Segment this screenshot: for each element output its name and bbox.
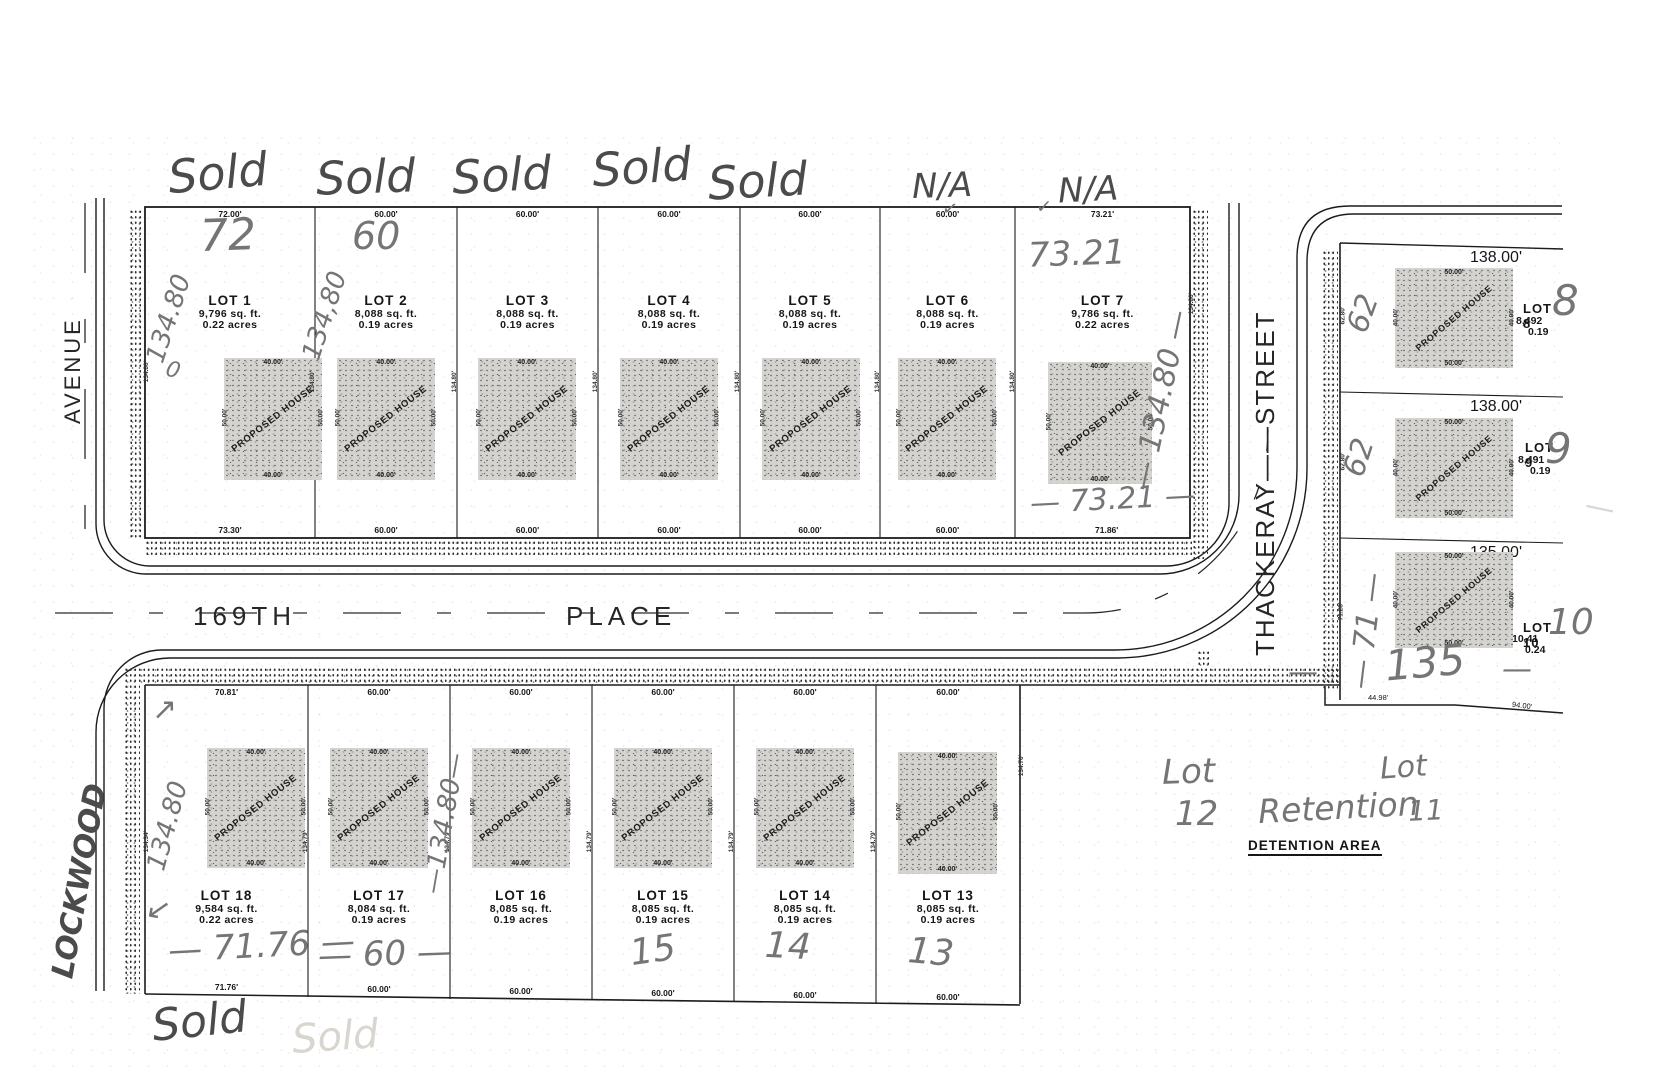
dim-side: 134.80' bbox=[1009, 371, 1016, 392]
dim-side: 134.79' bbox=[728, 831, 735, 852]
lot-14-front-dim: 60.00' bbox=[734, 687, 876, 697]
house-dim: 40.00' bbox=[762, 359, 860, 366]
lot-6-rear-dim: 60.00' bbox=[880, 525, 1015, 535]
lot-18-proposed-house: 40.00'40.00'50.00'50.00'PROPOSED HOUSE bbox=[207, 748, 305, 868]
handwritten-lot14-number: 14 bbox=[764, 925, 812, 968]
house-dim: 50.00' bbox=[1395, 360, 1513, 367]
handwritten-lot10-number: 10 bbox=[1548, 602, 1594, 643]
dim-side: 134.79' bbox=[870, 831, 877, 852]
handwritten-lot9-number: 9 bbox=[1545, 424, 1572, 473]
house-dim: 50.00' bbox=[993, 803, 1000, 821]
house-dim: 50.00' bbox=[1395, 553, 1513, 560]
house-dim: 40.00' bbox=[330, 749, 428, 756]
lot-13-label: LOT 13 bbox=[876, 888, 1020, 903]
dim-side: 134.80' bbox=[734, 371, 741, 392]
handwritten-sold-2: Sold bbox=[315, 148, 416, 205]
house-dim: 50.00' bbox=[334, 409, 341, 427]
easement-strip-south bbox=[124, 667, 1340, 684]
lot-5-rear-dim: 60.00' bbox=[740, 525, 880, 535]
house-dim: 40.00' bbox=[207, 749, 305, 756]
house-dim: 50.00' bbox=[566, 798, 573, 816]
handwritten-lot13-number: 13 bbox=[906, 930, 955, 975]
house-dim: 50.00' bbox=[475, 409, 482, 427]
handwritten-sold-4: Sold bbox=[590, 137, 693, 198]
handwritten-lot12-word: Lot bbox=[1161, 751, 1215, 793]
house-dim: 50.00' bbox=[759, 409, 766, 427]
lot-3-acres: 0.19 acres bbox=[457, 319, 598, 331]
proposed-house-label: PROPOSED HOUSE bbox=[904, 777, 991, 848]
handwritten-lot12-number: 12 bbox=[1175, 794, 1218, 834]
lot-9-depth-dim: 138.00' bbox=[1470, 398, 1522, 416]
detention-area-label: DETENTION AREA bbox=[1248, 838, 1382, 856]
house-dim: 40.00' bbox=[224, 472, 322, 479]
proposed-house-label: PROPOSED HOUSE bbox=[1414, 283, 1495, 353]
house-dim: 40.00' bbox=[478, 359, 576, 366]
dim-side: 134.80' bbox=[592, 371, 599, 392]
lot-4-acres: 0.19 acres bbox=[598, 319, 740, 331]
house-dim: 50.00' bbox=[708, 798, 715, 816]
house-dim: 50.00' bbox=[1395, 419, 1513, 426]
lot-15-rear-dim: 60.00' bbox=[592, 988, 734, 998]
lot-17-proposed-house: 40.00'40.00'50.00'50.00'PROPOSED HOUSE bbox=[330, 748, 428, 868]
lot-8-acres: 0.19 bbox=[1528, 326, 1548, 338]
proposed-house-label: PROPOSED HOUSE bbox=[1057, 387, 1144, 458]
house-dim: 50.00' bbox=[431, 409, 438, 427]
house-dim: 50.00' bbox=[1395, 269, 1513, 276]
house-dim: 40.00' bbox=[330, 860, 428, 867]
dim-r-west: 71.28' bbox=[1337, 603, 1344, 621]
dim-side-east: 134.70' bbox=[1018, 755, 1025, 776]
lot-2-proposed-house: 40.00'40.00'50.00'50.00'PROPOSED HOUSE bbox=[337, 358, 435, 480]
house-dim: 40.00' bbox=[620, 472, 718, 479]
house-dim: 40.00' bbox=[337, 359, 435, 366]
dim-side: 134.79' bbox=[586, 831, 593, 852]
proposed-house-label: PROPOSED HOUSE bbox=[904, 383, 991, 454]
handwritten-sold-1: Sold bbox=[166, 142, 270, 204]
proposed-house-label: PROPOSED HOUSE bbox=[484, 383, 571, 454]
house-dim: 40.00' bbox=[614, 860, 712, 867]
lot-1-proposed-house: 40.00'40.00'50.00'50.00'PROPOSED HOUSE bbox=[224, 358, 322, 480]
house-dim: 50.00' bbox=[895, 409, 902, 427]
house-dim: 50.00' bbox=[992, 409, 999, 427]
house-dim: 40.00' bbox=[614, 749, 712, 756]
proposed-house-label: PROPOSED HOUSE bbox=[626, 383, 713, 454]
handwritten-sold-faint: Sold bbox=[291, 1011, 380, 1063]
handwritten-sold-bottom: Sold bbox=[150, 991, 250, 1052]
house-dim: 50.00' bbox=[753, 798, 760, 816]
handwritten-dash-e: — bbox=[1502, 652, 1532, 687]
house-dim: 40.00' bbox=[207, 860, 305, 867]
lot-16-front-dim: 60.00' bbox=[450, 687, 592, 697]
lot-13-acres: 0.19 acres bbox=[876, 914, 1020, 926]
house-dim: 40.00' bbox=[1509, 591, 1516, 609]
house-dim: 40.00' bbox=[1509, 309, 1516, 327]
lot-2-rear-dim: 60.00' bbox=[315, 525, 457, 535]
house-dim: 40.00' bbox=[1392, 591, 1399, 609]
house-dim: 40.00' bbox=[1048, 363, 1152, 370]
lot-3-front-dim: 60.00' bbox=[457, 209, 598, 219]
lot-6-acres: 0.19 acres bbox=[880, 319, 1015, 331]
house-dim: 50.00' bbox=[1395, 510, 1513, 517]
street-label-thackeray: THACKERAY——STREET bbox=[1250, 216, 1281, 656]
house-dim: 40.00' bbox=[1392, 309, 1399, 327]
house-dim: 50.00' bbox=[221, 409, 228, 427]
house-dim: 40.00' bbox=[620, 359, 718, 366]
dim-side: 134.79' bbox=[302, 831, 309, 852]
lot-15-proposed-house: 40.00'40.00'50.00'50.00'PROPOSED HOUSE bbox=[614, 748, 712, 868]
house-dim: 50.00' bbox=[318, 409, 325, 427]
lot-3-rear-dim: 60.00' bbox=[457, 525, 598, 535]
lot-6-label: LOT 6 bbox=[880, 293, 1015, 308]
house-dim: 40.00' bbox=[478, 472, 576, 479]
lot-18-rear-dim: 71.76' bbox=[145, 982, 308, 992]
lot-7-rear-dim: 71.86' bbox=[1015, 525, 1190, 535]
house-dim: 50.00' bbox=[204, 798, 211, 816]
easement-strip-top-south bbox=[145, 540, 1192, 555]
house-dim: 50.00' bbox=[327, 798, 334, 816]
dim-side: 134.80' bbox=[309, 371, 316, 392]
lot-5-proposed-house: 40.00'40.00'50.00'50.00'PROPOSED HOUSE bbox=[762, 358, 860, 480]
handwritten-lot7-width: 73.21 bbox=[1027, 232, 1126, 275]
house-dim: 40.00' bbox=[898, 359, 996, 366]
house-dim: 40.00' bbox=[472, 749, 570, 756]
house-dim: 40.00' bbox=[756, 860, 854, 867]
lot-4-label: LOT 4 bbox=[598, 293, 740, 308]
house-dim: 40.00' bbox=[337, 472, 435, 479]
house-dim: 50.00' bbox=[856, 409, 863, 427]
proposed-house-label: PROPOSED HOUSE bbox=[213, 772, 300, 843]
lot-5-front-dim: 60.00' bbox=[740, 209, 880, 219]
proposed-house-label: PROPOSED HOUSE bbox=[230, 383, 317, 454]
handwritten-lot17-rear-width: — 60 — bbox=[317, 932, 451, 977]
handwritten-lot1-width: 72 bbox=[199, 209, 257, 262]
lot-3-proposed-house: 40.00'40.00'50.00'50.00'PROPOSED HOUSE bbox=[478, 358, 576, 480]
proposed-house-label: PROPOSED HOUSE bbox=[478, 772, 565, 843]
house-dim: 50.00' bbox=[714, 409, 721, 427]
house-dim: 40.00' bbox=[898, 866, 997, 873]
lot-8-depth-dim: 138.00' bbox=[1470, 249, 1522, 267]
house-dim: 50.00' bbox=[572, 409, 579, 427]
lot-13-proposed-house: 40.00'40.00'50.00'50.00'PROPOSED HOUSE bbox=[898, 752, 997, 874]
easement-strip-notch bbox=[1197, 650, 1211, 668]
proposed-house-label: PROPOSED HOUSE bbox=[768, 383, 855, 454]
handwritten-lot11-word: Lot bbox=[1379, 748, 1428, 786]
handwritten-lot10-frontage: 135 bbox=[1383, 635, 1467, 691]
handwritten-na-2: N/A bbox=[1057, 168, 1119, 211]
dim-4498: 44.98' bbox=[1368, 693, 1388, 702]
lot-4-front-dim: 60.00' bbox=[598, 209, 740, 219]
house-dim: 40.00' bbox=[898, 753, 997, 760]
house-dim: 40.00' bbox=[898, 472, 996, 479]
house-dim: 40.00' bbox=[1392, 459, 1399, 477]
lot-5-label: LOT 5 bbox=[740, 293, 880, 308]
handwritten-lot8-number: 8 bbox=[1552, 276, 1579, 325]
house-dim: 50.00' bbox=[895, 803, 902, 821]
proposed-house-label: PROPOSED HOUSE bbox=[336, 772, 423, 843]
lot-5-acres: 0.19 acres bbox=[740, 319, 880, 331]
dim-side: 134.80' bbox=[874, 371, 881, 392]
house-dim: 40.00' bbox=[762, 472, 860, 479]
house-dim: 50.00' bbox=[850, 798, 857, 816]
house-dim: 50.00' bbox=[301, 798, 308, 816]
handwritten-lot15-number: 15 bbox=[627, 927, 678, 974]
lot-16-proposed-house: 40.00'40.00'50.00'50.00'PROPOSED HOUSE bbox=[472, 748, 570, 868]
handwritten-dash-w: — bbox=[1288, 655, 1318, 690]
house-dim: 50.00' bbox=[611, 798, 618, 816]
proposed-house-label: PROPOSED HOUSE bbox=[1414, 565, 1495, 635]
lot-17-rear-dim: 60.00' bbox=[308, 984, 450, 994]
lot-10-proposed-house: 50.00'50.00'40.00'40.00'PROPOSED HOUSE bbox=[1395, 552, 1513, 648]
dim-side: 134.80' bbox=[143, 361, 150, 382]
lot-6-proposed-house: 40.00'40.00'50.00'50.00'PROPOSED HOUSE bbox=[898, 358, 996, 480]
lot-13-front-dim: 60.00' bbox=[876, 687, 1020, 697]
proposed-house-label: PROPOSED HOUSE bbox=[1414, 433, 1495, 503]
house-dim: 40.00' bbox=[472, 860, 570, 867]
lot-15-front-dim: 60.00' bbox=[592, 687, 734, 697]
handwritten-sold-5: Sold bbox=[707, 151, 809, 210]
house-dim: 40.00' bbox=[224, 359, 322, 366]
proposed-house-label: PROPOSED HOUSE bbox=[620, 772, 707, 843]
street-label-avenue: AVENUE bbox=[60, 284, 86, 424]
proposed-house-label: PROPOSED HOUSE bbox=[343, 383, 430, 454]
dim-side: 134.80' bbox=[451, 371, 458, 392]
lot-16-rear-dim: 60.00' bbox=[450, 986, 592, 996]
lot-16-acres: 0.19 acres bbox=[450, 914, 592, 926]
street-label-place: PLACE bbox=[566, 601, 676, 632]
lot-3-label: LOT 3 bbox=[457, 293, 598, 308]
house-dim: 50.00' bbox=[469, 798, 476, 816]
handwritten-arrow-ne: ↗ bbox=[152, 692, 177, 727]
lot-13-rear-dim: 60.00' bbox=[876, 992, 1020, 1002]
street-label-169th: 169TH bbox=[193, 601, 296, 632]
house-dim: 50.00' bbox=[1045, 413, 1052, 431]
lot-14-acres: 0.19 acres bbox=[734, 914, 876, 926]
lot-14-label: LOT 14 bbox=[734, 888, 876, 903]
house-dim: 40.00' bbox=[756, 749, 854, 756]
proposed-house-label: PROPOSED HOUSE bbox=[762, 772, 849, 843]
house-dim: 50.00' bbox=[424, 798, 431, 816]
lot-8-proposed-house: 50.00'50.00'40.00'40.00'PROPOSED HOUSE bbox=[1395, 268, 1513, 368]
lot-16-label: LOT 16 bbox=[450, 888, 592, 903]
lot-14-proposed-house: 40.00'40.00'50.00'50.00'PROPOSED HOUSE bbox=[756, 748, 854, 868]
lot-15-label: LOT 15 bbox=[592, 888, 734, 903]
lot-4-rear-dim: 60.00' bbox=[598, 525, 740, 535]
handwritten-lot11-number: 11 bbox=[1407, 793, 1444, 828]
plat-map-scan: 72.00' LOT 1 9,796 sq. ft. 0.22 acres 73… bbox=[0, 0, 1680, 1080]
handwritten-na-1: N/A bbox=[911, 165, 973, 207]
lot-17-front-dim: 60.00' bbox=[308, 687, 450, 697]
lot-9-proposed-house: 50.00'50.00'40.00'40.00'PROPOSED HOUSE bbox=[1395, 418, 1513, 518]
lot-14-rear-dim: 60.00' bbox=[734, 990, 876, 1000]
lot-15-acres: 0.19 acres bbox=[592, 914, 734, 926]
easement-strip-bottom-west bbox=[124, 684, 140, 994]
house-dim: 40.00' bbox=[1509, 459, 1516, 477]
lot-1-rear-dim: 73.30' bbox=[145, 525, 315, 535]
lot-4-proposed-house: 40.00'40.00'50.00'50.00'PROPOSED HOUSE bbox=[620, 358, 718, 480]
handwritten-sold-3: Sold bbox=[451, 145, 553, 204]
handwritten-check-2: ✓ bbox=[1035, 195, 1052, 218]
house-dim: 50.00' bbox=[617, 409, 624, 427]
